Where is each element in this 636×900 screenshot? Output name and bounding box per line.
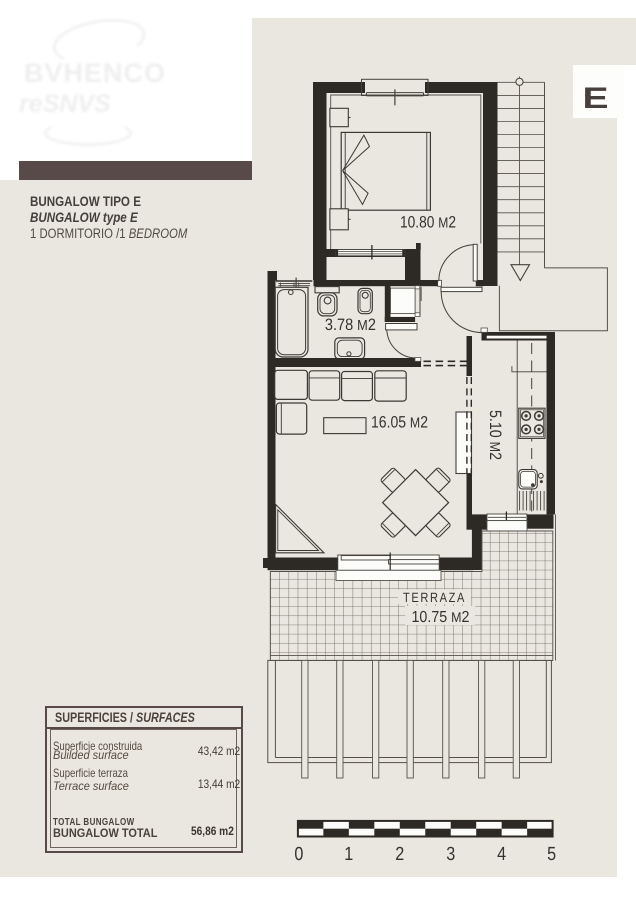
svg-text:10.75 M2: 10.75 M2 — [412, 609, 470, 626]
svg-text:3: 3 — [446, 844, 455, 865]
svg-text:16.05 M2: 16.05 M2 — [371, 413, 428, 431]
svg-text:2: 2 — [395, 844, 404, 865]
svg-text:1: 1 — [344, 844, 353, 865]
svg-text:5.10 M2: 5.10 M2 — [486, 410, 504, 460]
svg-text:0: 0 — [294, 844, 303, 865]
svg-text:10.80 M2: 10.80 M2 — [400, 214, 456, 232]
svg-text:5: 5 — [547, 844, 556, 865]
svg-text:3.78 M2: 3.78 M2 — [325, 316, 376, 334]
svg-text:TERRAZA: TERRAZA — [403, 590, 466, 605]
svg-text:4: 4 — [497, 844, 506, 865]
